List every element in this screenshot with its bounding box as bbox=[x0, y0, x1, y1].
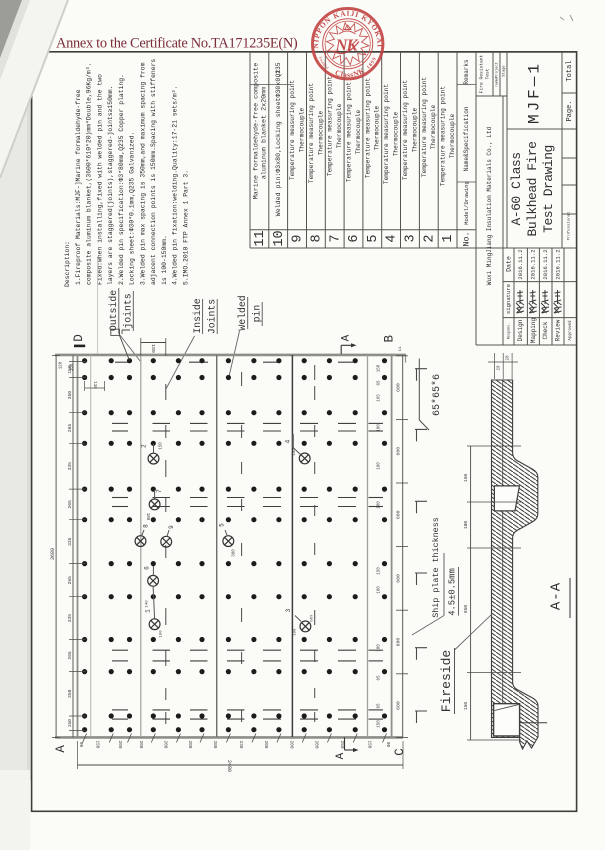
svg-text:Thermocouple: Thermocouple bbox=[430, 104, 437, 149]
svg-text:composite aluminum blanket,(36: composite aluminum blanket,(3600*610*20)… bbox=[86, 63, 93, 285]
svg-text:layers are staggered(joints),s: layers are staggered(joints),staggered-j… bbox=[107, 86, 114, 285]
svg-text:100: 100 bbox=[160, 630, 164, 638]
svg-text:150: 150 bbox=[463, 474, 469, 483]
svg-text:Temperature measuring point: Temperature measuring point bbox=[402, 80, 409, 181]
svg-text:A-A: A-A bbox=[549, 582, 565, 610]
svg-text:Q235: Q235 bbox=[275, 62, 282, 77]
svg-text:Thermocouple: Thermocouple bbox=[336, 103, 343, 148]
svg-text:11: 11 bbox=[253, 230, 268, 246]
svg-text:150: 150 bbox=[367, 741, 372, 749]
svg-text:90: 90 bbox=[385, 742, 390, 748]
svg-text:2016.11.2: 2016.11.2 bbox=[542, 249, 549, 279]
svg-text:100: 100 bbox=[308, 615, 312, 623]
svg-text:65*65*6: 65*65*6 bbox=[431, 374, 443, 416]
svg-text:Design: Design bbox=[517, 319, 524, 341]
svg-text:150: 150 bbox=[378, 567, 382, 575]
svg-text:is 100-150mm.: is 100-150mm. bbox=[161, 235, 168, 285]
svg-text:Approved: Approved bbox=[568, 320, 573, 341]
svg-text:Welded pin:Φ3x80,Locking sheet: Welded pin:Φ3x80,Locking sheetΦ30x0.1 bbox=[275, 70, 282, 216]
svg-text:Inside: Inside bbox=[192, 298, 203, 333]
svg-text:2016.11.2: 2016.11.2 bbox=[517, 249, 524, 279]
svg-text:6: 6 bbox=[144, 566, 151, 570]
svg-text:Check: Check bbox=[542, 321, 549, 339]
svg-text:Thermocouple: Thermocouple bbox=[298, 107, 305, 152]
svg-text:Annex to the Certificate No.TA: Annex to the Certificate No.TA171235E(N) bbox=[56, 36, 298, 52]
svg-text:3: 3 bbox=[403, 234, 418, 242]
svg-text:4: 4 bbox=[385, 234, 400, 242]
svg-text:Professional: Professional bbox=[567, 211, 572, 240]
svg-text:20: 20 bbox=[498, 365, 502, 371]
svg-text:335: 335 bbox=[67, 537, 73, 546]
svg-text:D: D bbox=[72, 334, 86, 342]
svg-text:1.Fireproof Materials:MJF-]Mar: 1.Fireproof Materials:MJF-]Marine formal… bbox=[75, 89, 82, 285]
svg-text:Fireside: Fireside bbox=[439, 650, 454, 712]
svg-text:Wuxi MingJiang Insulation Mate: Wuxi MingJiang Insulation Materials Co.,… bbox=[486, 126, 493, 285]
svg-text:Project: Project bbox=[495, 62, 500, 78]
svg-text:200: 200 bbox=[314, 741, 319, 749]
svg-text:Name&Specification: Name&Specification bbox=[463, 106, 470, 171]
svg-text:7: 7 bbox=[328, 234, 343, 242]
svg-text:3: 3 bbox=[285, 608, 292, 612]
svg-text:5: 5 bbox=[366, 234, 381, 242]
svg-text:2.Welded pin specification:Φ3*: 2.Welded pin specification:Φ3*80mm,Q235 … bbox=[118, 74, 125, 285]
svg-text:265: 265 bbox=[67, 651, 73, 660]
svg-text:Temperature measuring point: Temperature measuring point bbox=[346, 82, 353, 183]
svg-text:Bulkhead Fire: Bulkhead Fire bbox=[525, 142, 540, 237]
svg-text:200: 200 bbox=[212, 741, 217, 749]
svg-text:600: 600 bbox=[396, 574, 402, 583]
svg-text:Joints: Joints bbox=[207, 299, 218, 334]
svg-text:NK: NK bbox=[335, 36, 359, 55]
svg-text:name: name bbox=[496, 77, 500, 87]
svg-text:200: 200 bbox=[288, 741, 293, 749]
svg-text:A: A bbox=[54, 745, 68, 753]
svg-text:Temperature measuring point: Temperature measuring point bbox=[327, 76, 334, 177]
svg-text:Test Drawing: Test Drawing bbox=[541, 145, 556, 233]
svg-text:600: 600 bbox=[396, 638, 402, 647]
svg-text:165: 165 bbox=[378, 394, 382, 402]
svg-text:Locking sheet:Φ30*0.1mm,Q235 G: Locking sheet:Φ30*0.1mm,Q235 Galvanized. bbox=[129, 132, 136, 285]
svg-text:Fixed:When installing,fixed wi: Fixed:When installing,fixed with welded … bbox=[96, 74, 103, 285]
svg-text:200: 200 bbox=[263, 741, 268, 749]
svg-text:aluminum blanket 2x20mm: aluminum blanket 2x20mm bbox=[260, 87, 268, 179]
svg-text:3680: 3680 bbox=[50, 548, 56, 560]
svg-text:Thermocouple: Thermocouple bbox=[411, 107, 418, 152]
svg-text:265: 265 bbox=[67, 576, 73, 585]
svg-text:7: 7 bbox=[156, 489, 163, 493]
svg-text:150: 150 bbox=[378, 364, 382, 372]
svg-text:1: 1 bbox=[441, 234, 456, 242]
svg-text:850: 850 bbox=[463, 605, 469, 614]
svg-text:Mapping: Mapping bbox=[530, 318, 537, 344]
svg-text:Outside: Outside bbox=[108, 290, 119, 331]
svg-text:100: 100 bbox=[378, 501, 382, 509]
svg-text:600: 600 bbox=[396, 701, 402, 710]
svg-text:11: 11 bbox=[399, 346, 403, 351]
svg-text:90: 90 bbox=[78, 742, 83, 748]
svg-text:100: 100 bbox=[378, 586, 382, 594]
svg-text:A: A bbox=[335, 752, 347, 759]
svg-text:9: 9 bbox=[168, 525, 175, 529]
svg-text:1: 1 bbox=[145, 609, 152, 613]
svg-text:180: 180 bbox=[150, 344, 156, 353]
svg-text:100: 100 bbox=[463, 521, 469, 530]
svg-text:65: 65 bbox=[378, 380, 382, 386]
svg-text:600: 600 bbox=[396, 383, 402, 392]
svg-text:335: 335 bbox=[67, 614, 73, 623]
svg-text:A-60 Class: A-60 Class bbox=[509, 152, 524, 225]
svg-text:Thermocouple: Thermocouple bbox=[393, 111, 400, 156]
svg-text:adjacent connection points is: adjacent connection points is 150mm.Spac… bbox=[150, 59, 157, 285]
svg-text:Total: Total bbox=[566, 60, 574, 81]
svg-text:Thermocouple: Thermocouple bbox=[355, 109, 362, 154]
svg-text:Stage: Stage bbox=[503, 65, 507, 77]
svg-text:100: 100 bbox=[378, 424, 382, 432]
svg-text:Description:: Description: bbox=[64, 241, 71, 287]
svg-text:6: 6 bbox=[347, 234, 362, 242]
svg-text:180: 180 bbox=[145, 513, 149, 521]
svg-text:4.Welded pin fixation:welding.: 4.Welded pin fixation:welding.Quality:17… bbox=[172, 86, 179, 285]
svg-text:Temperature measuring point: Temperature measuring point bbox=[383, 84, 390, 185]
svg-text:Page.: Page. bbox=[566, 100, 574, 121]
svg-text:pin: pin bbox=[252, 305, 263, 323]
svg-text:150: 150 bbox=[160, 442, 164, 450]
svg-text:230: 230 bbox=[238, 741, 243, 749]
svg-text:C: C bbox=[393, 748, 407, 756]
svg-text:5: 5 bbox=[219, 523, 226, 527]
svg-text:Fire Resistant: Fire Resistant bbox=[479, 54, 485, 93]
svg-text:Temperature measuring point: Temperature measuring point bbox=[289, 80, 296, 181]
svg-text:150: 150 bbox=[67, 719, 73, 728]
svg-text:2016.11.2: 2016.11.2 bbox=[554, 249, 561, 279]
svg-text:65: 65 bbox=[378, 703, 382, 709]
svg-text:600: 600 bbox=[396, 447, 402, 456]
svg-text:4.5±0.5mm: 4.5±0.5mm bbox=[448, 568, 458, 616]
svg-text:3.Welded pin max spacing is 35: 3.Welded pin max spacing is 350mm,and ma… bbox=[139, 62, 146, 285]
svg-text:150: 150 bbox=[463, 702, 469, 711]
svg-text:4: 4 bbox=[285, 439, 292, 443]
svg-text:Marine formaldehyde-free compo: Marine formaldehyde-free composite bbox=[252, 63, 260, 199]
svg-text:Thermocouple: Thermocouple bbox=[374, 105, 381, 150]
svg-text:2: 2 bbox=[422, 234, 437, 242]
svg-text:265: 265 bbox=[67, 424, 73, 433]
svg-text:Temperature measuring point: Temperature measuring point bbox=[308, 83, 315, 184]
svg-text:signature: signature bbox=[505, 284, 512, 314]
svg-text:300: 300 bbox=[233, 549, 237, 557]
svg-text:150: 150 bbox=[378, 720, 382, 728]
svg-text:100: 100 bbox=[294, 628, 298, 636]
svg-text:9: 9 bbox=[291, 234, 306, 242]
svg-text:100: 100 bbox=[378, 644, 382, 652]
svg-text:Remarks: Remarks bbox=[463, 59, 470, 85]
svg-text:65: 65 bbox=[378, 675, 382, 681]
svg-text:250: 250 bbox=[339, 741, 344, 749]
svg-text:200: 200 bbox=[163, 741, 168, 749]
svg-text:B: B bbox=[382, 334, 396, 342]
svg-text:200: 200 bbox=[187, 741, 192, 749]
svg-text:350: 350 bbox=[67, 689, 73, 698]
svg-text:MJF—1: MJF—1 bbox=[526, 61, 544, 124]
svg-text:100: 100 bbox=[293, 448, 297, 456]
svg-text:335: 335 bbox=[67, 462, 73, 471]
svg-text:8: 8 bbox=[309, 234, 324, 242]
svg-text:Temperature measuring point: Temperature measuring point bbox=[440, 86, 447, 187]
svg-text:joints: joints bbox=[123, 293, 134, 328]
svg-text:Temperature measuring point: Temperature measuring point bbox=[421, 77, 428, 178]
svg-text:20: 20 bbox=[507, 355, 511, 361]
svg-text:2016.11.2: 2016.11.2 bbox=[530, 249, 537, 279]
svg-text:A: A bbox=[340, 334, 352, 341]
svg-text:150: 150 bbox=[95, 741, 100, 749]
svg-text:100: 100 bbox=[378, 462, 382, 470]
svg-text:No.: No. bbox=[462, 231, 472, 246]
svg-text:2480: 2480 bbox=[226, 760, 232, 772]
svg-text:2: 2 bbox=[141, 444, 148, 448]
svg-text:10: 10 bbox=[272, 230, 287, 246]
svg-text:Test: Test bbox=[485, 68, 491, 79]
svg-text:Review: Review bbox=[555, 319, 562, 341]
svg-text:130: 130 bbox=[92, 381, 96, 389]
svg-text:Model/Drawing: Model/Drawing bbox=[463, 181, 470, 225]
svg-text:140: 140 bbox=[146, 600, 150, 608]
svg-text:Welded: Welded bbox=[237, 295, 248, 330]
svg-text:8: 8 bbox=[143, 524, 150, 528]
svg-text:Ship plate thickness: Ship plate thickness bbox=[431, 517, 441, 618]
svg-text:5.IMO.2010 FTP Annex 1 Part 3.: 5.IMO.2010 FTP Annex 1 Part 3. bbox=[182, 170, 189, 285]
svg-text:265: 265 bbox=[67, 500, 73, 509]
svg-text:600: 600 bbox=[396, 510, 402, 519]
svg-text:120: 120 bbox=[60, 361, 64, 369]
svg-text:200: 200 bbox=[117, 741, 122, 749]
svg-text:Thermocouple: Thermocouple bbox=[449, 113, 456, 158]
svg-text:Temperature measuring point: Temperature measuring point bbox=[364, 78, 371, 179]
svg-text:Respons.: Respons. bbox=[507, 323, 511, 339]
svg-text:Date: Date bbox=[505, 256, 512, 272]
svg-text:350: 350 bbox=[67, 391, 73, 400]
svg-text:150: 150 bbox=[71, 363, 75, 371]
svg-text:Thermocouple: Thermocouple bbox=[317, 110, 324, 155]
svg-text:200: 200 bbox=[138, 741, 143, 749]
